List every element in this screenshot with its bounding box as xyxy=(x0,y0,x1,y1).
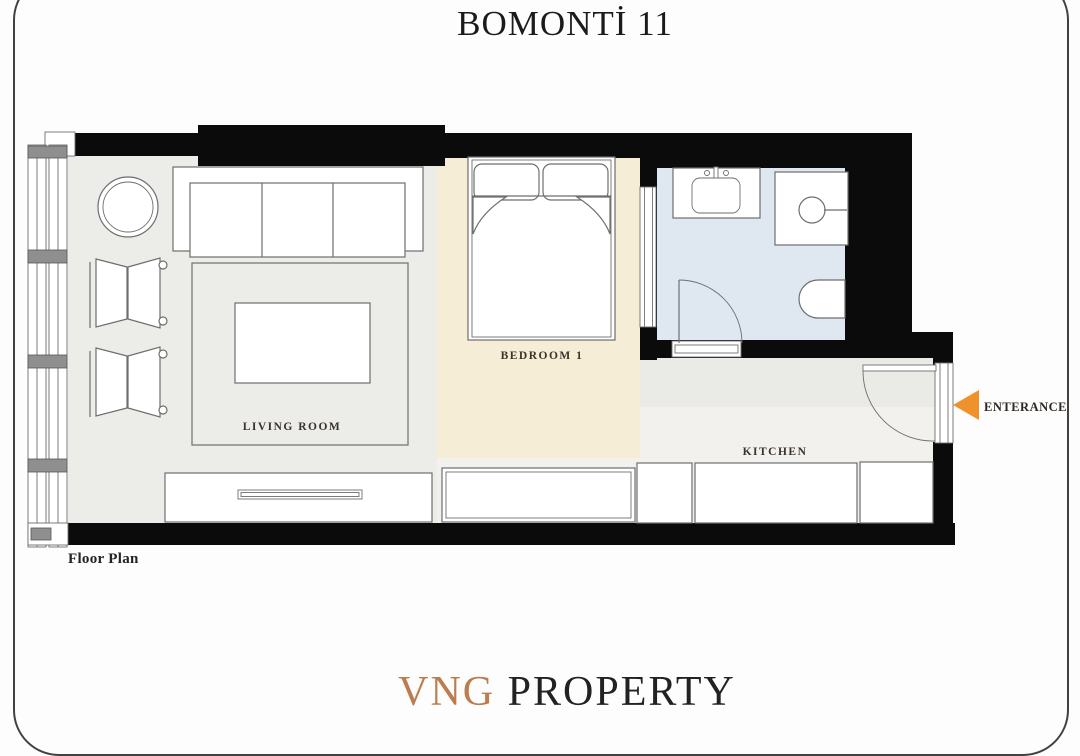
entrance-label: ENTERANCE xyxy=(984,400,1067,414)
brand-logo-rest: PROPERTY xyxy=(508,669,736,715)
armchair xyxy=(90,347,167,417)
bedroom-label: BEDROOM 1 xyxy=(501,350,584,362)
toilet xyxy=(799,280,845,318)
coffee-table xyxy=(235,303,370,383)
shower-head-icon xyxy=(799,197,825,223)
kitchen-counter xyxy=(695,463,857,523)
brand-logo-accent: VNG xyxy=(398,669,495,715)
wall-top-left xyxy=(68,133,198,156)
kitchen-counter xyxy=(860,462,933,523)
sink xyxy=(692,178,740,213)
floor-plan-caption: Floor Plan xyxy=(68,551,139,567)
door-threshold xyxy=(672,341,741,357)
round-table xyxy=(98,177,158,237)
bedroom-bathroom-door xyxy=(640,187,656,327)
kitchen-counter xyxy=(637,463,692,523)
wall-top-bedroom xyxy=(443,133,660,158)
door-leaf xyxy=(863,365,936,371)
pillow xyxy=(543,164,608,200)
wall-bottom xyxy=(68,523,955,545)
brand-logo: VNG PROPERTY xyxy=(398,668,736,716)
tv xyxy=(238,490,362,499)
floor-plan: LIVING ROOM BEDROOM 1 xyxy=(0,0,1080,720)
pillow xyxy=(474,164,539,200)
wardrobe xyxy=(442,468,635,522)
window-wall xyxy=(28,132,75,547)
armchair xyxy=(90,258,167,328)
wall-right-upper xyxy=(845,160,912,358)
door-frame xyxy=(935,363,953,443)
wall-top-thick xyxy=(198,125,445,166)
living-room-label: LIVING ROOM xyxy=(243,421,342,433)
entrance-arrow-icon xyxy=(953,390,979,420)
kitchen-label: KITCHEN xyxy=(743,446,808,458)
